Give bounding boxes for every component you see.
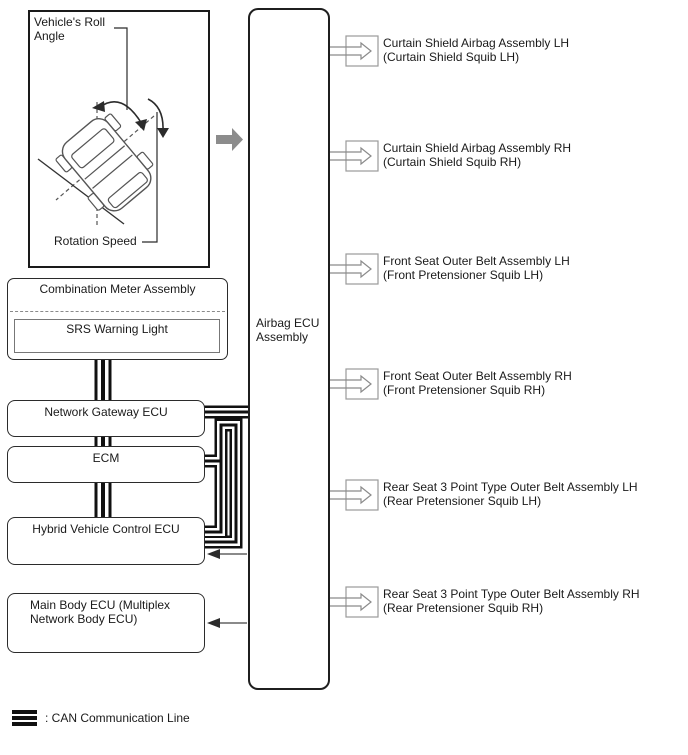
connector-box-icon (346, 254, 378, 284)
connector-label-line1: Curtain Shield Airbag Assembly LH (383, 36, 683, 50)
arrowhead-icon (92, 101, 105, 112)
combination-meter-title: Combination Meter Assembly (8, 282, 227, 296)
srs-warning-light-label: SRS Warning Light (15, 322, 219, 336)
connector-label-line1: Rear Seat 3 Point Type Outer Belt Assemb… (383, 587, 683, 601)
flow-right-arrow-icon (216, 128, 243, 151)
legend-bar (12, 710, 37, 714)
connector-label-line1: Curtain Shield Airbag Assembly RH (383, 141, 683, 155)
connector-label-line1: Front Seat Outer Belt Assembly LH (383, 254, 683, 268)
main-body-ecu-box: Main Body ECU (Multiplex Network Body EC… (7, 593, 205, 653)
can-line-symbol-icon (12, 710, 37, 728)
roll-angle-illustration (30, 12, 208, 266)
hybrid-vehicle-control-ecu-box: Hybrid Vehicle Control ECU (7, 517, 205, 565)
srs-warning-light-box: SRS Warning Light (14, 319, 220, 353)
left-arrowhead-icon (207, 618, 220, 628)
connector-label: Rear Seat 3 Point Type Outer Belt Assemb… (383, 480, 683, 508)
legend: : CAN Communication Line (12, 710, 190, 728)
connector-label-line2: (Rear Pretensioner Squib RH) (383, 601, 683, 615)
roll-angle-figure-box: Vehicle's Roll Angle Rotation Speed (28, 10, 210, 268)
legend-text: : CAN Communication Line (45, 710, 190, 727)
connector-label-line2: (Rear Pretensioner Squib LH) (383, 494, 683, 508)
connector-label: Front Seat Outer Belt Assembly RH (Front… (383, 369, 683, 397)
connector-box-icon (346, 587, 378, 617)
connector-box-icon (346, 369, 378, 399)
connector-label: Rear Seat 3 Point Type Outer Belt Assemb… (383, 587, 683, 615)
connector-label-line2: (Curtain Shield Squib LH) (383, 50, 683, 64)
connector-label: Front Seat Outer Belt Assembly LH (Front… (383, 254, 683, 282)
roll-angle-label: Vehicle's Roll Angle (34, 15, 122, 43)
legend-bar (12, 716, 37, 720)
network-gateway-ecu-label: Network Gateway ECU (8, 405, 204, 419)
arrowhead-icon (157, 128, 169, 138)
connector-box-icon (346, 141, 378, 171)
combination-meter-box: Combination Meter Assembly SRS Warning L… (7, 278, 228, 360)
ecm-label: ECM (8, 451, 204, 465)
dashed-divider (10, 311, 225, 312)
arrowhead-icon (135, 119, 147, 131)
connector-label-line1: Front Seat Outer Belt Assembly RH (383, 369, 683, 383)
connector-label: Curtain Shield Airbag Assembly RH (Curta… (383, 141, 683, 169)
airbag-ecu-label: Airbag ECU Assembly (256, 316, 328, 344)
connector-box-icon (346, 36, 378, 66)
connector-box-icon (346, 480, 378, 510)
rotation-speed-label: Rotation Speed (54, 234, 146, 248)
diagram-canvas: Vehicle's Roll Angle Rotation Speed Comb… (0, 0, 688, 755)
connector-label: Curtain Shield Airbag Assembly LH (Curta… (383, 36, 683, 64)
hybrid-vehicle-control-ecu-label: Hybrid Vehicle Control ECU (8, 522, 204, 536)
ecm-box: ECM (7, 446, 205, 483)
network-gateway-ecu-box: Network Gateway ECU (7, 400, 205, 437)
airbag-ecu-box: Airbag ECU Assembly (248, 8, 330, 690)
left-arrowhead-icon (207, 549, 220, 559)
connector-label-line1: Rear Seat 3 Point Type Outer Belt Assemb… (383, 480, 683, 494)
connector-label-line2: (Front Pretensioner Squib LH) (383, 268, 683, 282)
connector-label-line2: (Curtain Shield Squib RH) (383, 155, 683, 169)
legend-bar (12, 722, 37, 726)
signal-arrows (207, 549, 247, 628)
rotation-curved-arrow (148, 99, 163, 131)
main-body-ecu-label: Main Body ECU (Multiplex Network Body EC… (8, 598, 204, 626)
squib-connectors (330, 36, 378, 617)
connector-label-line2: (Front Pretensioner Squib RH) (383, 383, 683, 397)
